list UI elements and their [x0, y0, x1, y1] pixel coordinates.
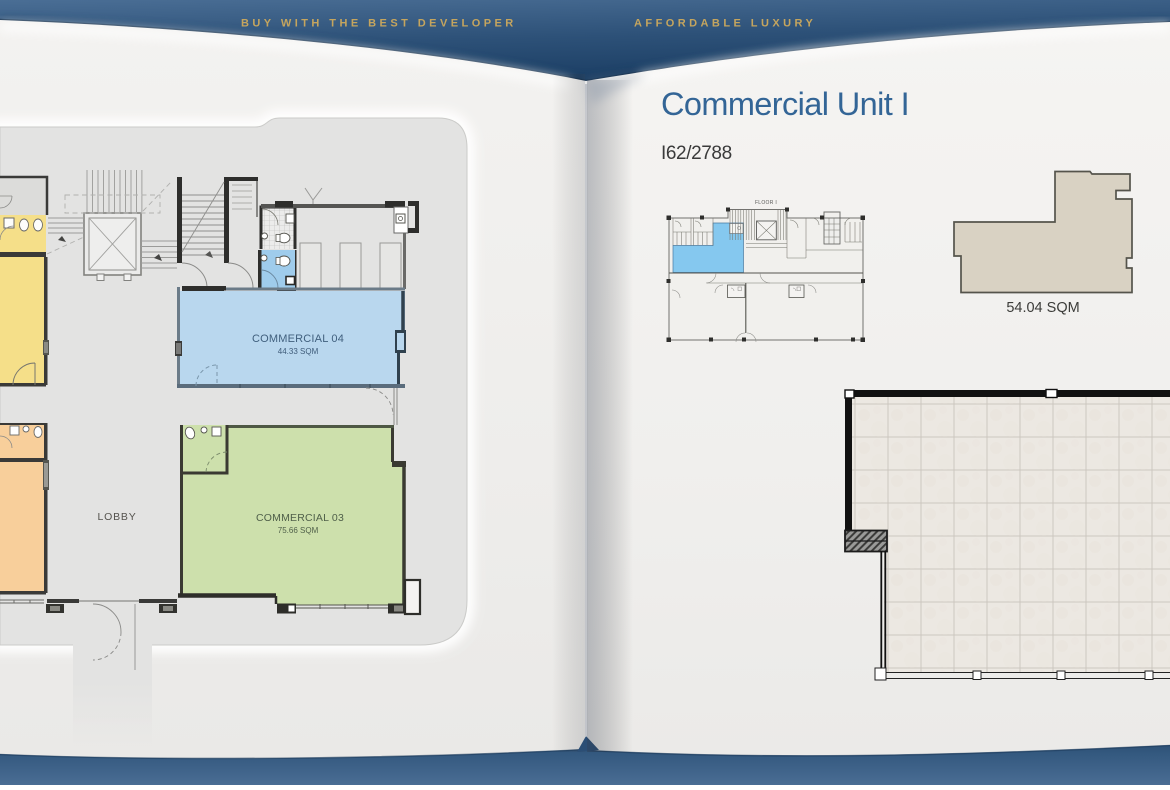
svg-text:AFFORDABLE LUXURY: AFFORDABLE LUXURY [634, 18, 816, 30]
svg-text:44.33 SQM: 44.33 SQM [278, 347, 319, 356]
svg-text:FLOOR I: FLOOR I [755, 200, 777, 206]
svg-text:I62/2788: I62/2788 [661, 143, 732, 164]
svg-text:54.04 SQM: 54.04 SQM [1006, 300, 1079, 316]
svg-text:BUY WITH THE BEST DEVELOPER: BUY WITH THE BEST DEVELOPER [241, 18, 517, 30]
svg-text:COMMERCIAL 04: COMMERCIAL 04 [252, 333, 344, 345]
svg-text:COMMERCIAL 03: COMMERCIAL 03 [256, 512, 344, 524]
svg-text:LOBBY: LOBBY [97, 511, 136, 523]
svg-text:Commercial Unit I: Commercial Unit I [661, 86, 909, 122]
svg-text:75.66 SQM: 75.66 SQM [278, 526, 319, 535]
